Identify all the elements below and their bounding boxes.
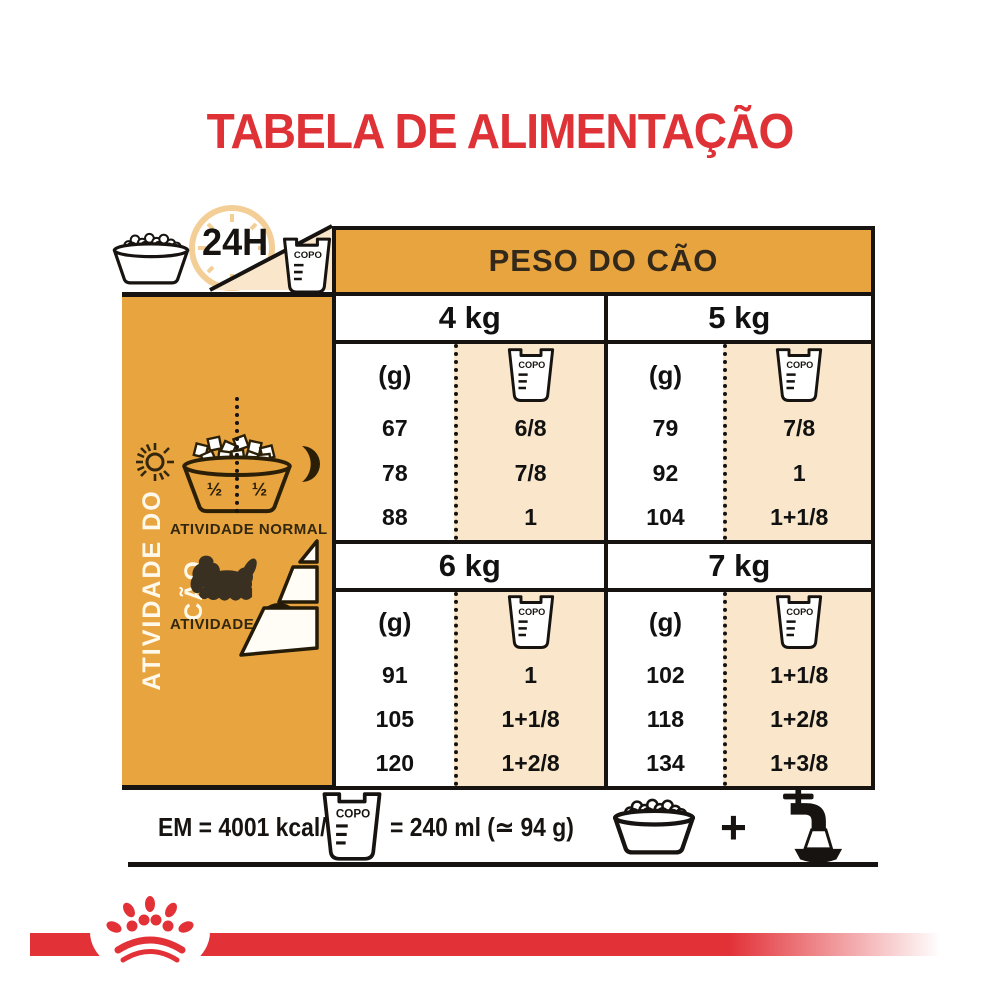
grams-label: (g) <box>336 344 454 406</box>
measuring-cup-icon: COPO <box>506 595 556 650</box>
svg-text:COPO: COPO <box>787 607 814 617</box>
cups-value: 1+1/8 <box>458 698 604 742</box>
cups-value: 1+1/8 <box>727 495 871 540</box>
grams-value: 78 <box>336 451 454 496</box>
cups-value: 1+1/8 <box>727 654 871 698</box>
weight-4kg: 4 kg <box>336 296 604 344</box>
grams-value: 134 <box>608 742 724 786</box>
cups-value: 7/8 <box>458 451 604 496</box>
grams-value: 92 <box>608 451 724 496</box>
cups-value: 7/8 <box>727 406 871 451</box>
svg-text:½: ½ <box>252 479 267 500</box>
activity-normal-label: ATIVIDADE NORMAL <box>170 521 328 538</box>
crown-logo-icon <box>86 880 214 980</box>
feeding-table: 4 kg (g) 67 78 88 COPO 6 <box>332 292 875 790</box>
svg-text:COPO: COPO <box>787 360 814 370</box>
grams-value: 104 <box>608 495 724 540</box>
measuring-cup-icon: COPO <box>506 348 556 403</box>
grams-value: 67 <box>336 406 454 451</box>
weight-5kg: 5 kg <box>608 296 872 344</box>
weight-6kg: 6 kg <box>336 544 604 592</box>
cups-value: 6/8 <box>458 406 604 451</box>
grams-label: (g) <box>608 592 724 654</box>
measuring-cup-icon: COPO <box>320 792 384 862</box>
cups-value: 1 <box>458 495 604 540</box>
food-bowl-icon <box>108 227 194 291</box>
cups-value: 1 <box>458 654 604 698</box>
section-4kg: 4 kg (g) 67 78 88 COPO 6 <box>336 296 604 540</box>
cups-value: 1 <box>727 451 871 496</box>
section-7kg: 7 kg (g) 102 118 134 COPO <box>604 540 872 786</box>
feeding-table-page: TABELA DE ALIMENTAÇÃO 24H COPO PESO <box>0 0 1000 1000</box>
weight-7kg: 7 kg <box>608 544 872 592</box>
svg-text:COPO: COPO <box>518 607 545 617</box>
measuring-cup-icon: COPO <box>281 237 333 295</box>
food-bowl-icon <box>593 794 715 860</box>
grams-value: 105 <box>336 698 454 742</box>
activity-sidebar: ATIVIDADE DO CÃO <box>122 292 332 790</box>
grams-value: 102 <box>608 654 724 698</box>
water-tap-icon <box>756 786 852 866</box>
grams-value: 88 <box>336 495 454 540</box>
svg-text:COPO: COPO <box>518 360 545 370</box>
grams-label: (g) <box>608 344 724 406</box>
measuring-cup-icon: COPO <box>774 348 824 403</box>
cups-value: 1+3/8 <box>727 742 871 786</box>
grams-label: (g) <box>336 592 454 654</box>
cups-value: 1+2/8 <box>727 698 871 742</box>
svg-text:½: ½ <box>207 479 222 500</box>
grams-value: 118 <box>608 698 724 742</box>
cup-equivalence-label: = 240 ml (≃ 94 g) <box>390 812 574 843</box>
moon-icon <box>293 443 325 485</box>
plus-sign: + <box>720 800 747 854</box>
footer-legend: EM = 4001 kcal/kg COPO = 240 ml (≃ 94 g)… <box>128 790 878 867</box>
grams-value: 120 <box>336 742 454 786</box>
activity-vertical-label: ATIVIDADE DO CÃO <box>131 483 173 697</box>
section-5kg: 5 kg (g) 79 92 104 COPO <box>604 296 872 540</box>
section-6kg: 6 kg (g) 91 105 120 COPO <box>336 540 604 786</box>
activity-wedges-icon <box>238 537 322 661</box>
measuring-cup-icon: COPO <box>774 595 824 650</box>
weight-header: PESO DO CÃO <box>332 226 875 292</box>
sun-icon <box>134 441 176 483</box>
grams-value: 79 <box>608 406 724 451</box>
grams-value: 91 <box>336 654 454 698</box>
cups-value: 1+2/8 <box>458 742 604 786</box>
svg-text:COPO: COPO <box>336 807 370 820</box>
half-divider-dotted-line <box>235 397 239 513</box>
page-title: TABELA DE ALIMENTAÇÃO <box>30 104 970 160</box>
svg-text:COPO: COPO <box>294 250 322 261</box>
